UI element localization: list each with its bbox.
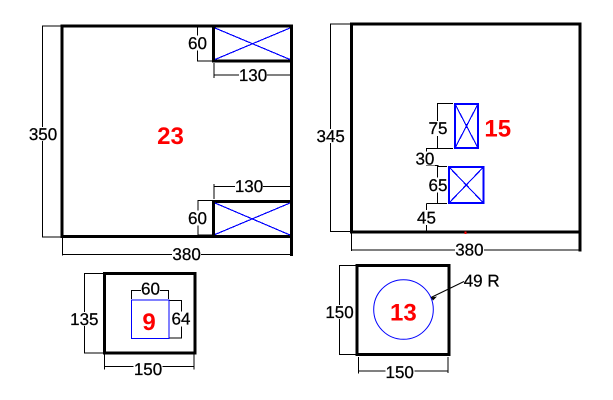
svg-text:13: 13 [390, 299, 417, 326]
svg-text:345: 345 [317, 127, 345, 146]
svg-text:23: 23 [157, 123, 184, 150]
svg-text:130: 130 [235, 177, 263, 196]
svg-text:15: 15 [484, 116, 511, 143]
svg-text:135: 135 [70, 310, 98, 329]
svg-text:49 R: 49 R [464, 272, 500, 291]
svg-text:60: 60 [188, 34, 207, 53]
svg-text:150: 150 [134, 360, 162, 379]
svg-text:75: 75 [429, 119, 448, 138]
svg-text:380: 380 [172, 245, 200, 264]
svg-text:60: 60 [188, 209, 207, 228]
svg-text:150: 150 [325, 303, 353, 322]
svg-text:130: 130 [239, 66, 267, 85]
svg-text:9: 9 [142, 309, 155, 336]
svg-text:60: 60 [141, 279, 160, 298]
svg-text:380: 380 [455, 240, 483, 259]
svg-text:150: 150 [386, 363, 414, 382]
svg-text:64: 64 [172, 309, 191, 328]
svg-text:65: 65 [429, 176, 448, 195]
svg-text:45: 45 [417, 208, 436, 227]
svg-text:30: 30 [415, 149, 434, 168]
svg-text:350: 350 [29, 125, 57, 144]
